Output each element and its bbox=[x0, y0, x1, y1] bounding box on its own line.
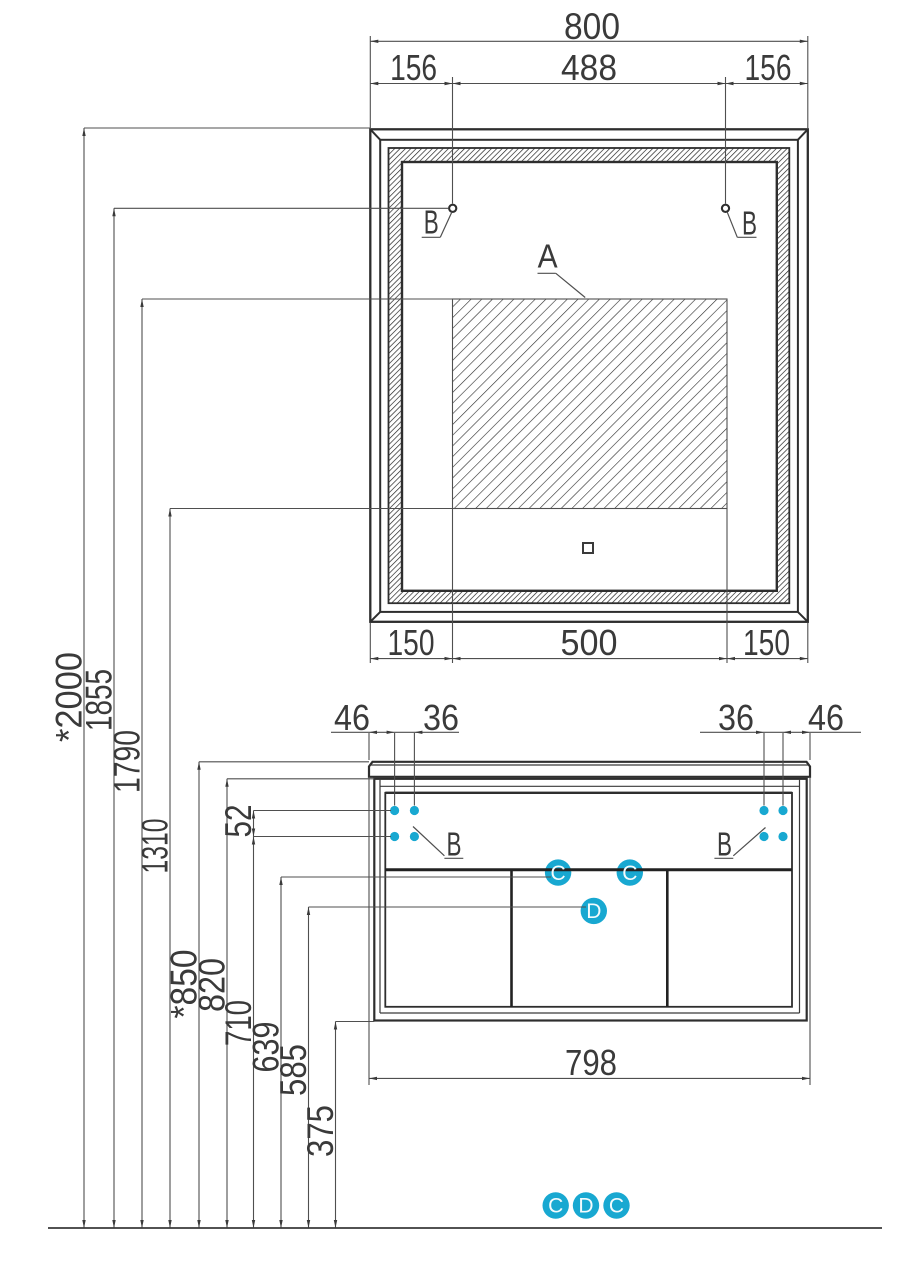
svg-text:B: B bbox=[447, 826, 462, 863]
svg-text:C: C bbox=[551, 862, 566, 885]
svg-text:52: 52 bbox=[218, 805, 259, 838]
svg-text:46: 46 bbox=[334, 697, 370, 738]
svg-text:800: 800 bbox=[564, 6, 620, 47]
svg-text:500: 500 bbox=[561, 622, 618, 663]
svg-text:798: 798 bbox=[565, 1042, 617, 1083]
svg-text:1855: 1855 bbox=[79, 669, 120, 731]
svg-text:D: D bbox=[578, 1195, 593, 1218]
svg-text:1310: 1310 bbox=[135, 819, 176, 874]
svg-text:585: 585 bbox=[273, 1044, 314, 1096]
svg-text:C: C bbox=[548, 1195, 563, 1218]
svg-text:150: 150 bbox=[388, 622, 435, 663]
svg-text:B: B bbox=[717, 826, 732, 863]
svg-text:375: 375 bbox=[300, 1105, 341, 1157]
svg-text:C: C bbox=[609, 1195, 624, 1218]
svg-text:B: B bbox=[424, 204, 439, 241]
svg-text:488: 488 bbox=[561, 47, 617, 88]
svg-text:B: B bbox=[742, 204, 757, 241]
svg-text:150: 150 bbox=[743, 622, 790, 663]
svg-text:46: 46 bbox=[808, 697, 844, 738]
svg-text:36: 36 bbox=[423, 697, 459, 738]
svg-text:156: 156 bbox=[390, 47, 437, 88]
svg-text:D: D bbox=[586, 900, 601, 923]
svg-text:36: 36 bbox=[718, 697, 754, 738]
svg-text:156: 156 bbox=[745, 47, 792, 88]
svg-text:C: C bbox=[622, 862, 637, 885]
svg-text:1790: 1790 bbox=[107, 730, 148, 793]
svg-text:A: A bbox=[538, 238, 558, 275]
